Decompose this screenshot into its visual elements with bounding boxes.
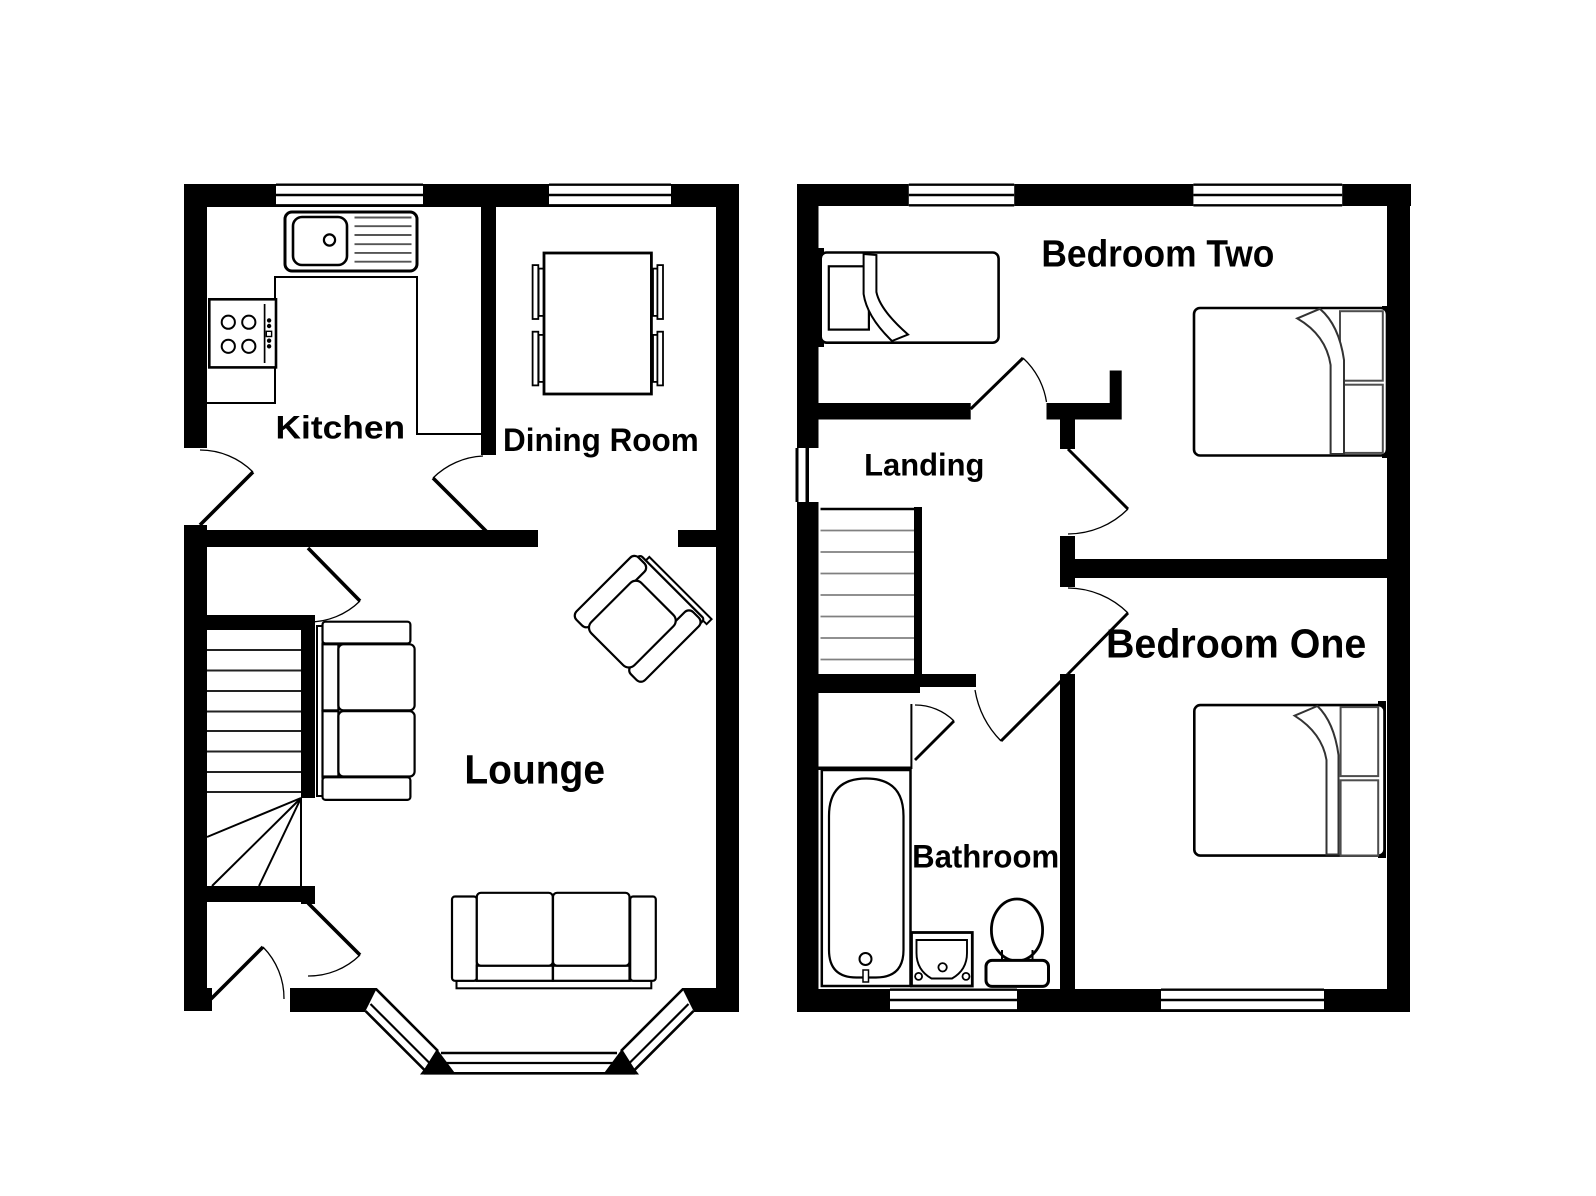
svg-text:Lounge: Lounge bbox=[464, 747, 605, 793]
svg-text:Dining Room: Dining Room bbox=[503, 422, 699, 458]
svg-text:Bedroom One: Bedroom One bbox=[1106, 620, 1366, 666]
svg-text:Bedroom Two: Bedroom Two bbox=[1041, 234, 1274, 276]
svg-text:Kitchen: Kitchen bbox=[276, 410, 406, 446]
svg-text:Landing: Landing bbox=[864, 448, 984, 483]
svg-text:Bathroom: Bathroom bbox=[912, 838, 1059, 874]
